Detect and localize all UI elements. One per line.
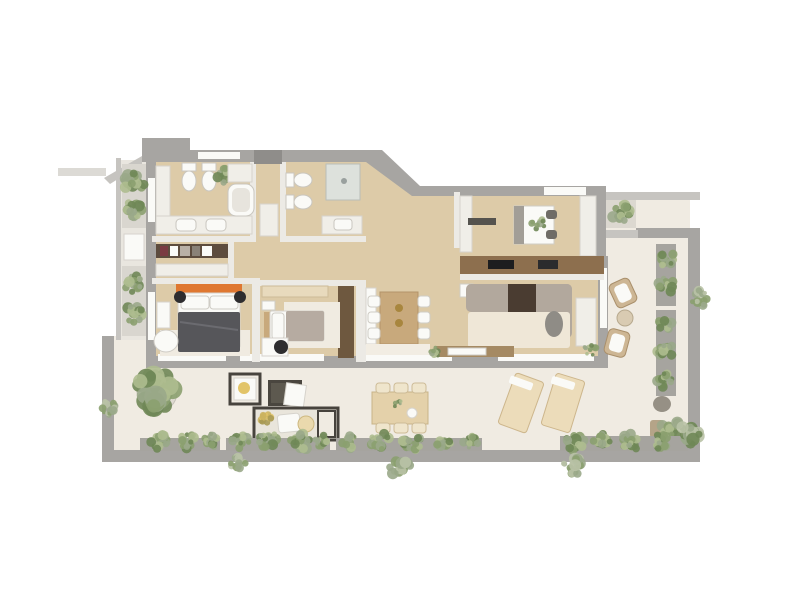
terrace-tray: [284, 383, 307, 408]
dining-chair-r2: [418, 312, 430, 323]
wing-stone-pot: [653, 396, 671, 412]
outdoor-chair-t2: [394, 383, 408, 393]
planter-green-4-leaf: [246, 439, 251, 444]
spill-plant-6-leaf: [99, 404, 107, 412]
dining-table: [380, 292, 418, 344]
bath1-cabinet: [156, 166, 170, 216]
living-pouf: [545, 311, 563, 337]
wing-plant-1a-leaf: [669, 261, 674, 266]
right-wing-top-wall: [636, 228, 700, 238]
planter-green-15-leaf: [632, 445, 640, 453]
wall-bath1-bottom: [152, 236, 256, 242]
dining-decor-1: [395, 304, 403, 312]
kitchen-tall-units: [580, 196, 596, 256]
planter-green-14-leaf: [598, 439, 607, 448]
planter-green-4-leaf: [239, 434, 246, 441]
balcony-ac-unit: [124, 234, 144, 260]
bath2-sink: [334, 219, 352, 230]
outdoor-table-plant-leaf: [399, 399, 403, 403]
closet-clothes-5: [202, 246, 212, 256]
planter-green-12-leaf: [466, 440, 472, 446]
spill-plant-6-leaf: [109, 406, 118, 415]
planter-green-12-leaf: [474, 440, 481, 447]
closet-clothes-2: [170, 246, 178, 256]
master-blanket: [178, 312, 240, 352]
bath1-sink-2: [206, 219, 226, 231]
bath1-vanity: [156, 216, 252, 234]
spill-plant-1-leaf: [235, 464, 244, 473]
balcony-plant-2b-leaf: [138, 306, 145, 313]
dining-chair-r1: [418, 296, 430, 307]
living-plant-leaf: [588, 348, 593, 353]
master-pillow-2: [210, 296, 238, 309]
wing-plant-2b-leaf: [661, 343, 666, 348]
living-bench: [576, 298, 596, 346]
balcony-plant-1b-leaf: [126, 207, 134, 215]
balcony-plant-2b-leaf: [130, 319, 137, 326]
planter-green-3-leaf: [208, 441, 215, 448]
bedroom2-tall-wardrobe: [338, 286, 354, 358]
wing-plant-2c-leaf: [662, 372, 667, 377]
bath2-bidet-tank: [286, 195, 294, 209]
planter-green-1-leaf: [146, 437, 156, 447]
entry-cabinet: [260, 204, 278, 236]
planter-green-16-leaf: [660, 432, 671, 443]
spill-plant-5-leaf: [694, 299, 699, 304]
wing-plant-1b-leaf: [656, 283, 664, 291]
dining-chair-r3: [418, 328, 430, 339]
terrace-sofa-plant-leaf: [268, 415, 275, 422]
planter-green-14-leaf: [607, 439, 613, 445]
planter-green-14-leaf: [590, 437, 598, 445]
planter-green-5-leaf: [261, 443, 269, 451]
planter-green-9-leaf: [379, 446, 385, 452]
balcony-plant-2b-leaf: [131, 311, 139, 319]
pocket-plant-leaf: [621, 202, 631, 212]
wall-bedroom2-right: [356, 280, 366, 362]
kitchen-island-plant-leaf: [541, 219, 546, 224]
balcony-plant-2a-leaf: [137, 276, 143, 282]
bath1-shelf: [228, 164, 252, 182]
planter-green-9-leaf: [369, 434, 375, 440]
wing-plant-1a-leaf: [659, 262, 666, 269]
bath1-bathtub-inner: [232, 188, 250, 212]
spill-plant-5-leaf: [696, 287, 702, 293]
terrace-sofa-plant-leaf: [260, 420, 264, 424]
hall-plant-leaf: [431, 349, 436, 354]
terrace-left-wall: [102, 336, 114, 462]
floor-plan-canvas: [0, 0, 800, 600]
outdoor-chair-b2: [394, 423, 408, 433]
planter-green-7-leaf: [320, 432, 327, 439]
kitchen-mat: [468, 218, 496, 225]
planter-green-8-leaf: [343, 441, 351, 449]
wing-plant-2b-leaf: [667, 342, 676, 351]
pocket-parapet: [606, 192, 700, 200]
planter-green-7-leaf: [323, 438, 330, 445]
planter-green-2-leaf: [188, 439, 193, 444]
planter-green-13-leaf: [563, 436, 572, 445]
planter-green-12-leaf: [469, 434, 476, 441]
balcony-plant-1a-leaf: [128, 180, 136, 188]
spill-plant-1-leaf: [228, 461, 234, 467]
hall-rug: [366, 344, 430, 355]
living-plant-leaf: [585, 352, 589, 356]
planter-green-7-leaf: [313, 437, 319, 443]
outdoor-chair-t1: [376, 383, 390, 393]
awning-ledge: [58, 168, 106, 176]
wall-bath2-bottom: [280, 236, 366, 242]
planter-green-16: [653, 431, 671, 452]
living-plant-leaf: [589, 343, 594, 348]
pocket-plant-leaf: [626, 212, 633, 219]
wall-entry-right: [280, 162, 286, 238]
closet-clothes-4: [192, 246, 200, 256]
spill-plant-4-leaf: [686, 433, 699, 446]
balcony-plant-2a-leaf: [137, 284, 142, 289]
kitchen-island-plant-leaf: [534, 223, 539, 228]
bedroom2-nightstand: [262, 301, 275, 310]
wing-plant-2a-leaf: [660, 316, 670, 326]
planter-green-5-leaf: [256, 439, 263, 446]
wing-plant-1a-leaf: [668, 250, 677, 259]
closet-clothes-3: [180, 246, 190, 256]
balcony-plant-2a-leaf: [124, 276, 135, 287]
terrace-sofa-end: [318, 411, 335, 437]
dining-chair-l3: [368, 328, 380, 339]
spill-plant-2-leaf: [400, 457, 411, 468]
tv-screen: [448, 348, 486, 355]
bath2-toilet-tank: [286, 173, 294, 187]
terrace-big-plant-leaf: [147, 399, 160, 412]
wing-side-table: [617, 310, 633, 326]
planter-green-13-leaf: [565, 444, 574, 453]
kitchen-stool-2: [546, 230, 557, 239]
master-dresser: [157, 302, 170, 328]
dining-chair-l1: [368, 296, 380, 307]
master-lamp-left: [174, 291, 186, 303]
kitchen-cooktop: [488, 260, 514, 269]
balcony-plant-2b-leaf: [128, 304, 134, 310]
outdoor-chair-t3: [412, 383, 426, 393]
planter-green-6-leaf: [290, 439, 299, 448]
master-headboard: [176, 284, 242, 293]
bath1-toilet-bowl: [182, 171, 196, 191]
spill-plant-5-leaf: [703, 291, 707, 295]
wall-bedroom2-top: [260, 280, 366, 286]
bath1-plant-leaf: [213, 172, 223, 182]
master-lamp-right: [234, 291, 246, 303]
living-sofa-throw: [508, 284, 536, 312]
planter-green-10-leaf: [406, 437, 413, 444]
planter-green-1-leaf: [158, 430, 168, 440]
kitchen-stool-1: [546, 210, 557, 219]
terrace-sofa-plant-leaf: [260, 412, 267, 419]
planter-green-11-leaf: [433, 440, 441, 448]
wall-closet-right: [228, 242, 234, 282]
bedroom2-headboard: [264, 312, 270, 340]
outdoor-table-plate: [407, 408, 417, 418]
master-armchair: [154, 330, 178, 352]
planter-green-6-leaf: [296, 430, 305, 439]
planter-green-2-leaf: [178, 436, 186, 444]
pocket-plant-leaf: [621, 217, 628, 224]
window-left-lower: [148, 292, 155, 340]
bath2-bidet-bowl: [294, 195, 312, 209]
closet-shelf: [156, 264, 228, 276]
kitchen-right-wall: [596, 186, 606, 258]
planter-green-3-leaf: [208, 432, 217, 441]
spill-plant-4-leaf: [677, 421, 689, 433]
bath1-toilet-tank: [182, 163, 196, 171]
terrace-big-plant-leaf: [133, 374, 147, 388]
spill-plant-3-leaf: [569, 459, 581, 471]
outdoor-table: [372, 392, 428, 424]
kitchen-counter: [460, 256, 604, 274]
planter-green-15-leaf: [626, 442, 632, 448]
wall-kitchen-left: [454, 192, 460, 248]
planter-green-4-leaf: [238, 441, 243, 446]
planter-green-1-leaf: [153, 445, 161, 453]
bath2-shower-head: [341, 178, 347, 184]
outer-wall-top-stub: [142, 138, 190, 150]
planter-green-10-leaf: [414, 434, 422, 442]
outdoor-table-plant-leaf: [393, 404, 397, 408]
dining-decor-2: [395, 319, 403, 327]
bath2-toilet-bowl: [294, 173, 312, 187]
spill-plant-5-leaf: [701, 302, 707, 308]
planter-green-9-leaf: [376, 435, 383, 442]
window-kitchen: [544, 187, 586, 195]
planter-green-13-leaf: [577, 442, 586, 451]
living-plant-leaf: [591, 353, 595, 357]
planter-green-16-leaf: [655, 445, 662, 452]
wing-plant-1a-leaf: [658, 251, 667, 260]
wall-closet-bottom: [152, 278, 260, 284]
terrace-sofa-pillow: [277, 413, 301, 433]
entry-door-niche: [254, 150, 282, 164]
window-left-upper: [148, 178, 155, 222]
bedroom2-chair: [274, 340, 288, 354]
spill-plant-3-leaf: [561, 461, 567, 467]
terrace-armchair-pillow: [238, 382, 250, 394]
bath1-bidet-tank: [202, 163, 216, 171]
kitchen-island-plant-leaf: [528, 220, 535, 227]
outdoor-chair-b3: [412, 423, 426, 433]
planter-green-5-leaf: [259, 433, 264, 438]
planter-green-4-leaf: [228, 436, 237, 445]
pocket-divider-wall: [606, 230, 638, 238]
kitchen-island-side: [514, 206, 524, 244]
pocket-plant-leaf: [607, 211, 618, 222]
wall-bedrooms-divider: [252, 284, 260, 362]
planter-green-2-leaf: [184, 444, 190, 450]
planter-green-1-leaf: [163, 441, 170, 448]
bedroom2-blanket: [286, 311, 324, 341]
planter-green-16-leaf: [657, 440, 662, 445]
dining-chair-l2: [368, 312, 380, 323]
wing-plant-1b-leaf: [667, 282, 677, 292]
floor-plan-page: [0, 0, 800, 600]
planter-green-11-leaf: [446, 438, 454, 446]
balcony-plant-1a-leaf: [130, 170, 138, 178]
living-plant-leaf: [583, 346, 587, 350]
spill-plant-5-leaf: [690, 299, 695, 304]
window-bath1: [198, 152, 240, 159]
planter-green-6-leaf: [299, 444, 308, 453]
spill-plant-6-leaf: [102, 399, 107, 404]
planter-green-4-leaf: [235, 444, 243, 452]
bedroom2-pillow: [272, 313, 284, 339]
balcony-plant-2a-leaf: [129, 289, 135, 295]
kitchen-sink: [538, 260, 558, 269]
closet-clothes-1: [160, 246, 168, 256]
bedroom2-wardrobe: [262, 286, 328, 297]
bath1-sink-1: [176, 219, 196, 231]
